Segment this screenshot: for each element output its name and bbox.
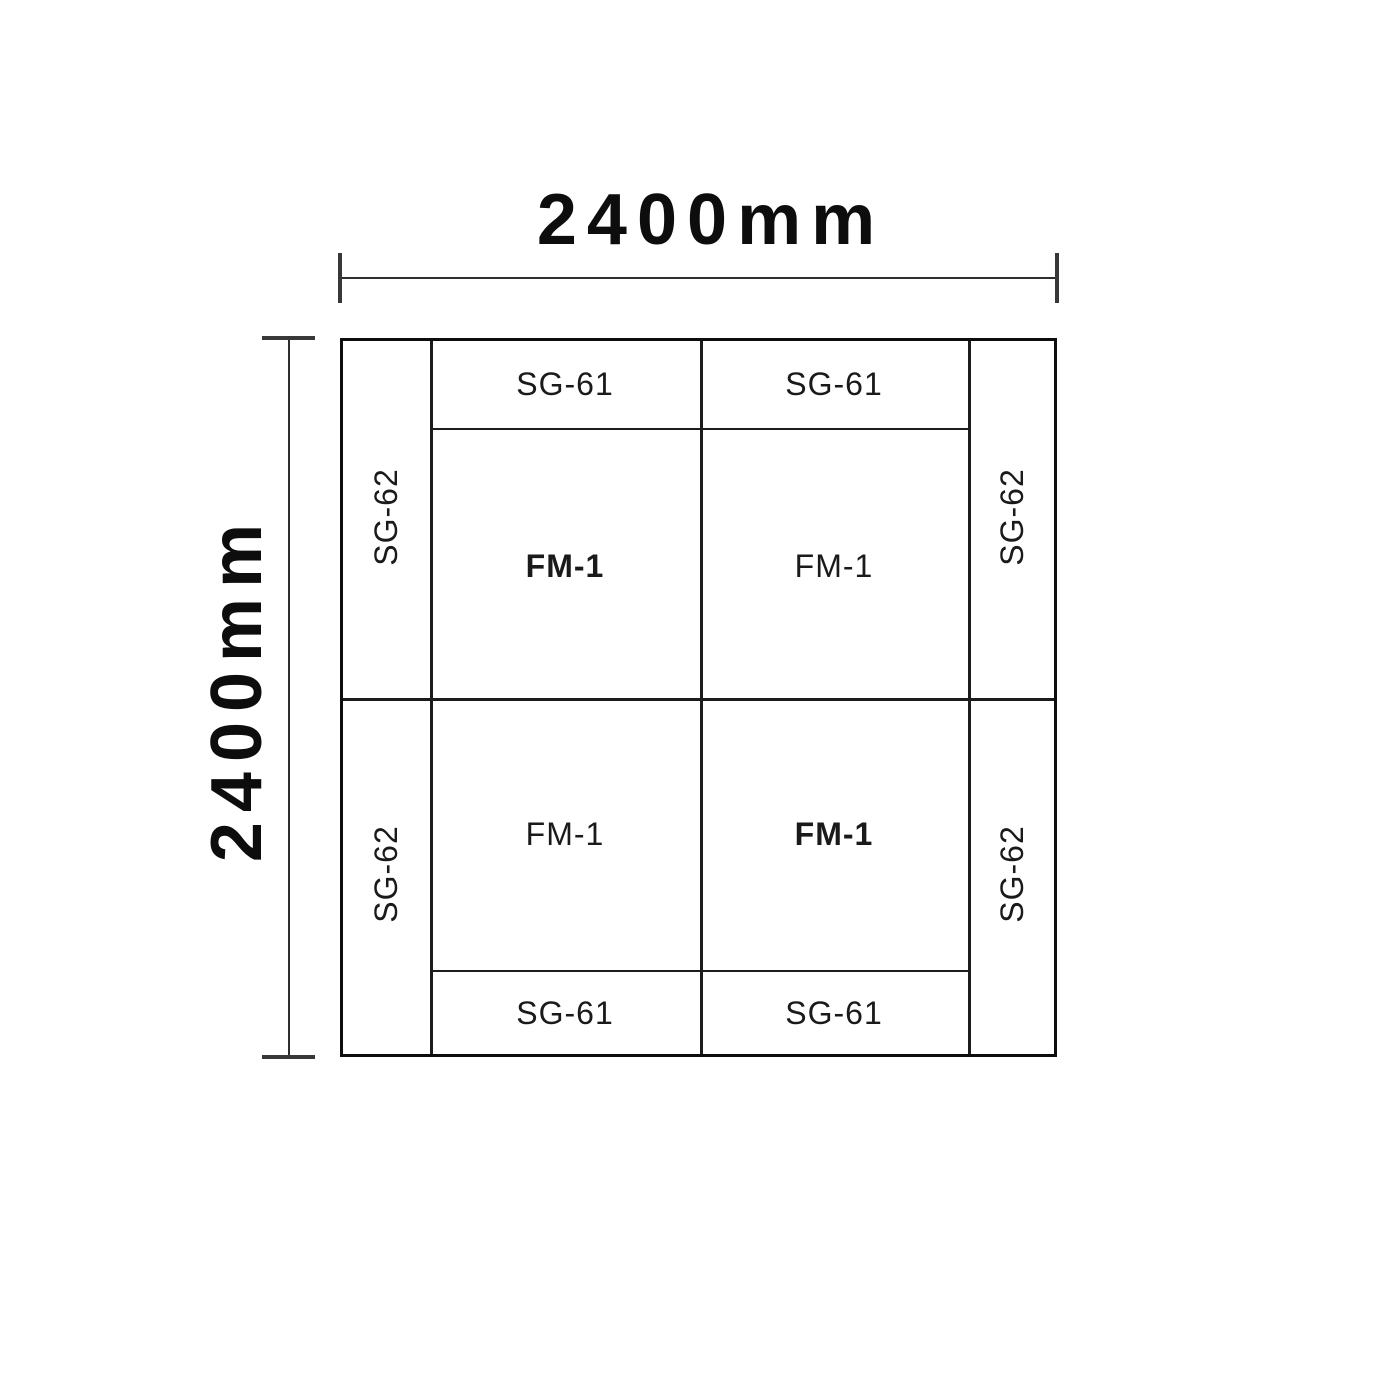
cell-label-sg62-right-top: SG-62 xyxy=(996,468,1028,565)
cell-label-sg62-left-top: SG-62 xyxy=(370,468,402,565)
drawing-canvas: 2400mm 2400mm SG-61 SG-61 SG-61 SG-61 SG… xyxy=(0,0,1400,1400)
cell-label-fm1-top-left: FM-1 xyxy=(526,550,605,582)
left-dimension-line xyxy=(288,338,290,1057)
top-dimension-right-tick xyxy=(1055,253,1059,303)
left-dimension-bottom-tick xyxy=(262,1055,315,1059)
left-dimension-top-tick xyxy=(262,336,315,340)
top-dimension-left-tick xyxy=(338,253,342,303)
cell-label-sg62-right-bottom: SG-62 xyxy=(996,825,1028,922)
grid-line-bottom-strip-top xyxy=(430,970,970,972)
top-dimension-label: 2400mm xyxy=(537,184,885,256)
cell-label-sg62-left-bottom: SG-62 xyxy=(370,825,402,922)
cell-label-fm1-bottom-right: FM-1 xyxy=(795,818,874,850)
cell-label-sg61-top-right: SG-61 xyxy=(785,368,882,400)
cell-label-fm1-bottom-left: FM-1 xyxy=(526,818,605,850)
grid-line-center-horizontal xyxy=(343,698,1054,701)
cell-label-sg61-bottom-left: SG-61 xyxy=(516,997,613,1029)
cell-label-sg61-top-left: SG-61 xyxy=(516,368,613,400)
grid-line-top-strip-bottom xyxy=(430,428,970,430)
cell-label-sg61-bottom-right: SG-61 xyxy=(785,997,882,1029)
plan-outline xyxy=(340,338,1057,1057)
top-dimension-line xyxy=(340,277,1057,279)
cell-label-fm1-top-right: FM-1 xyxy=(795,550,874,582)
left-dimension-label: 2400mm xyxy=(201,514,273,862)
